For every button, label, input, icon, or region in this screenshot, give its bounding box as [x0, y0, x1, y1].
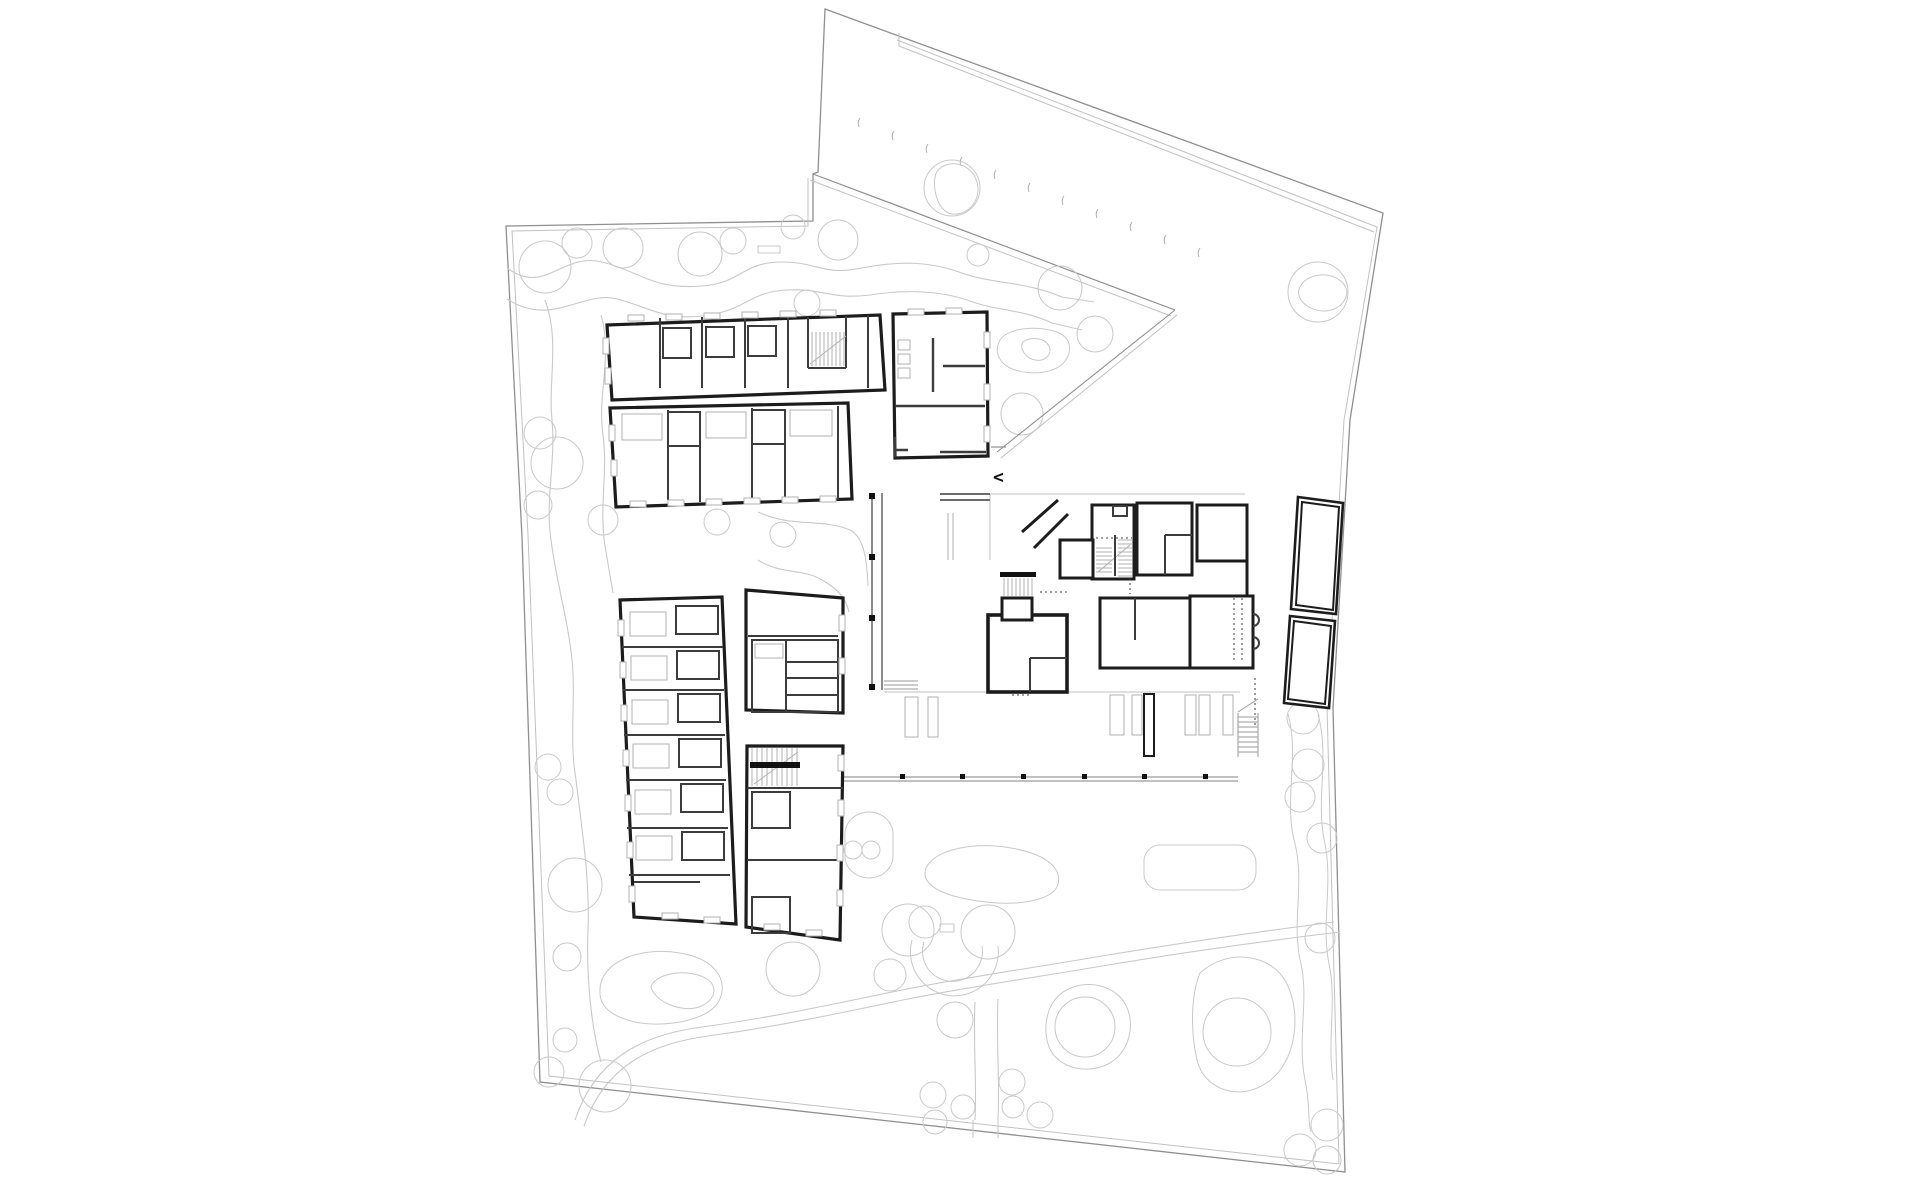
- planting-blob: [925, 846, 1059, 903]
- tree: [766, 942, 820, 996]
- villa-vestibule: [1060, 540, 1093, 578]
- lower-stair-landing: [750, 762, 800, 768]
- tree: [548, 858, 602, 912]
- garden-path: [507, 260, 1094, 302]
- tree: [951, 1095, 975, 1119]
- planter-strip: [928, 697, 938, 737]
- play-area-ring: [922, 942, 982, 981]
- tree: [603, 228, 643, 268]
- play-area-bench: [940, 924, 954, 932]
- glazed-corridor: [872, 493, 882, 690]
- footpath-entry: [1001, 315, 1177, 458]
- tree: [999, 1069, 1025, 1095]
- tree: [524, 417, 556, 449]
- slope-hatch-ticks: [858, 118, 1200, 257]
- tree: [535, 754, 561, 780]
- planting-blob: [997, 328, 1069, 373]
- planter-strip: [905, 697, 918, 737]
- tree: [720, 228, 746, 254]
- garden-band: [1318, 714, 1333, 1080]
- planter-strip: [1223, 695, 1233, 735]
- corridor-mullion: [869, 684, 875, 690]
- tree: [1027, 1102, 1053, 1128]
- planting-blob: [1192, 957, 1295, 1092]
- tree: [920, 1082, 946, 1108]
- tree-canopy-blob: [934, 164, 978, 214]
- tree: [704, 509, 730, 535]
- planter-strip: [1199, 695, 1210, 735]
- terrace-post: [900, 774, 905, 779]
- window-band-wing-east: [984, 332, 990, 442]
- canopy-posts: [948, 513, 953, 560]
- tree: [1305, 923, 1335, 953]
- site-boundary: [506, 9, 1383, 1172]
- garden-path: [973, 999, 999, 1138]
- tree: [1038, 266, 1082, 310]
- villa-room-se: [1190, 596, 1253, 668]
- tree: [781, 215, 805, 239]
- garden-path-main: [575, 922, 1334, 1120]
- terrace-stair: [1238, 699, 1258, 757]
- tree: [923, 1110, 947, 1134]
- play-area-ring: [910, 940, 998, 996]
- site-plan-svg: <: [0, 0, 1920, 1200]
- tree: [961, 905, 1015, 959]
- building-upper-wing: [893, 312, 988, 458]
- garden-path: [545, 300, 601, 1062]
- terrace-post: [1203, 774, 1208, 779]
- corridor-mullion: [869, 615, 875, 621]
- shrub-bed-inner: [1203, 998, 1271, 1066]
- villa-elevator: [1002, 598, 1032, 620]
- tree: [678, 232, 722, 276]
- villa-room-e: [1197, 505, 1247, 561]
- planting-blob: [770, 522, 796, 547]
- building-upper-row2: [610, 403, 852, 507]
- tree: [1002, 1096, 1024, 1118]
- path-bench: [758, 246, 780, 253]
- site-boundary-inner2: [899, 33, 1374, 232]
- tree: [1292, 749, 1324, 781]
- tree: [794, 290, 820, 316]
- site-plan-page: <: [0, 0, 1920, 1200]
- street-edge: [813, 174, 1175, 310]
- planter-strip: [1185, 695, 1196, 735]
- tree: [547, 779, 573, 805]
- corridor-mullion: [869, 493, 875, 499]
- tree: [882, 904, 934, 956]
- tree: [531, 437, 583, 489]
- planting-blob: [600, 951, 722, 1024]
- north-chevron: <: [993, 467, 1004, 488]
- shrub-bed-inner: [1055, 997, 1115, 1057]
- tree: [553, 1028, 577, 1052]
- tree: [937, 1002, 973, 1038]
- tree: [1285, 782, 1315, 812]
- villa-room-s: [1100, 598, 1190, 668]
- tree: [1284, 1134, 1316, 1166]
- planting-blob-inner: [1022, 339, 1050, 361]
- tree: [524, 491, 552, 519]
- tree: [1288, 262, 1348, 322]
- planter-strip: [1132, 695, 1142, 735]
- tree: [862, 841, 880, 859]
- entry-canopy: [940, 494, 990, 500]
- terrace-post: [960, 774, 965, 779]
- terrace-post: [1142, 774, 1147, 779]
- villa-room-sw: [988, 615, 1067, 692]
- tree: [562, 228, 592, 258]
- garden-band: [1288, 714, 1311, 1132]
- tree: [874, 959, 906, 991]
- corridor-mullion: [869, 554, 875, 560]
- planting-blob: [1144, 845, 1256, 890]
- planter-strip: [1110, 695, 1124, 735]
- terrace-post: [1082, 774, 1087, 779]
- villa-ext-stair-bar: [1000, 572, 1036, 577]
- tree: [967, 244, 989, 266]
- tree: [924, 160, 980, 216]
- tree: [1077, 316, 1113, 352]
- villa-ext-stair-treads: [1004, 578, 1032, 596]
- tree-canopy-blob: [1299, 275, 1347, 311]
- building-lower-right-lower: [746, 746, 843, 940]
- planting-capsule: [845, 812, 893, 878]
- footpath-entry: [997, 310, 1175, 452]
- planter-dark: [1144, 694, 1154, 756]
- terrace-post: [1021, 774, 1026, 779]
- corridor-bench: [884, 681, 918, 689]
- garden-path-main: [584, 932, 1340, 1126]
- tree: [844, 841, 862, 859]
- tree: [553, 943, 581, 971]
- garden-path: [758, 512, 868, 586]
- planting-blob-inner: [651, 973, 714, 1009]
- tree: [818, 220, 858, 260]
